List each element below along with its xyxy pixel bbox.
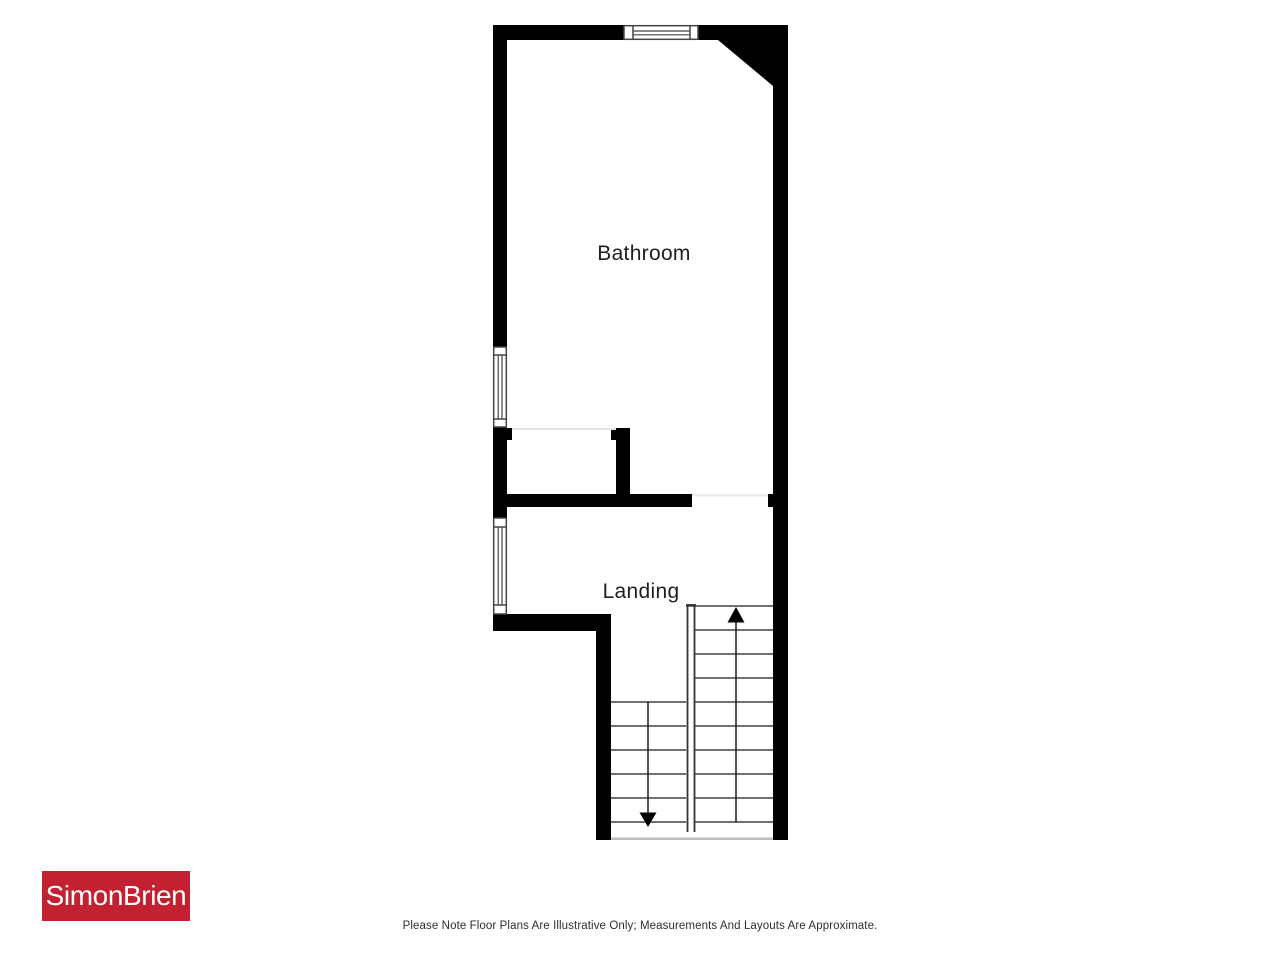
wall-bathroom-landing-divider: [493, 494, 692, 507]
window-bathroom-left: [494, 347, 507, 427]
wall-corner-diagonal: [718, 40, 773, 86]
wall-cupboard-left-stub: [493, 428, 512, 440]
landing-opening-line: [692, 494, 768, 497]
stair-up-arrow-icon: [728, 607, 745, 623]
wall-top-left-segment: [493, 25, 624, 40]
agency-logo: SimonBrien: [42, 871, 190, 921]
landing-label: Landing: [603, 580, 680, 604]
exterior-walls: [493, 25, 788, 840]
cupboard-opening-line: [512, 428, 616, 430]
staircase: [611, 605, 773, 832]
stair-down-arrow-icon: [640, 813, 657, 828]
window-landing-left: [494, 518, 507, 614]
wall-landing-bottom: [493, 614, 611, 631]
wall-stairwell-left: [596, 631, 611, 840]
stairwell-bottom-opening-line: [611, 838, 773, 841]
bathroom-label: Bathroom: [597, 242, 690, 266]
windows: [494, 26, 698, 614]
window-bathroom-top: [624, 26, 698, 40]
stair-flight-up-treads: [695, 630, 773, 822]
wall-left-upper: [493, 25, 507, 347]
opening-lines: [512, 428, 773, 840]
wall-stub-right-of-opening: [768, 494, 774, 507]
stair-divider: [686, 605, 696, 832]
disclaimer-text: Please Note Floor Plans Are Illustrative…: [0, 920, 1280, 932]
wall-right: [773, 25, 788, 840]
floorplan-drawing: [0, 0, 1280, 960]
agency-logo-text: SimonBrien: [46, 880, 187, 912]
floorplan-page: Bathroom Landing SimonBrien Please Note …: [0, 0, 1280, 960]
